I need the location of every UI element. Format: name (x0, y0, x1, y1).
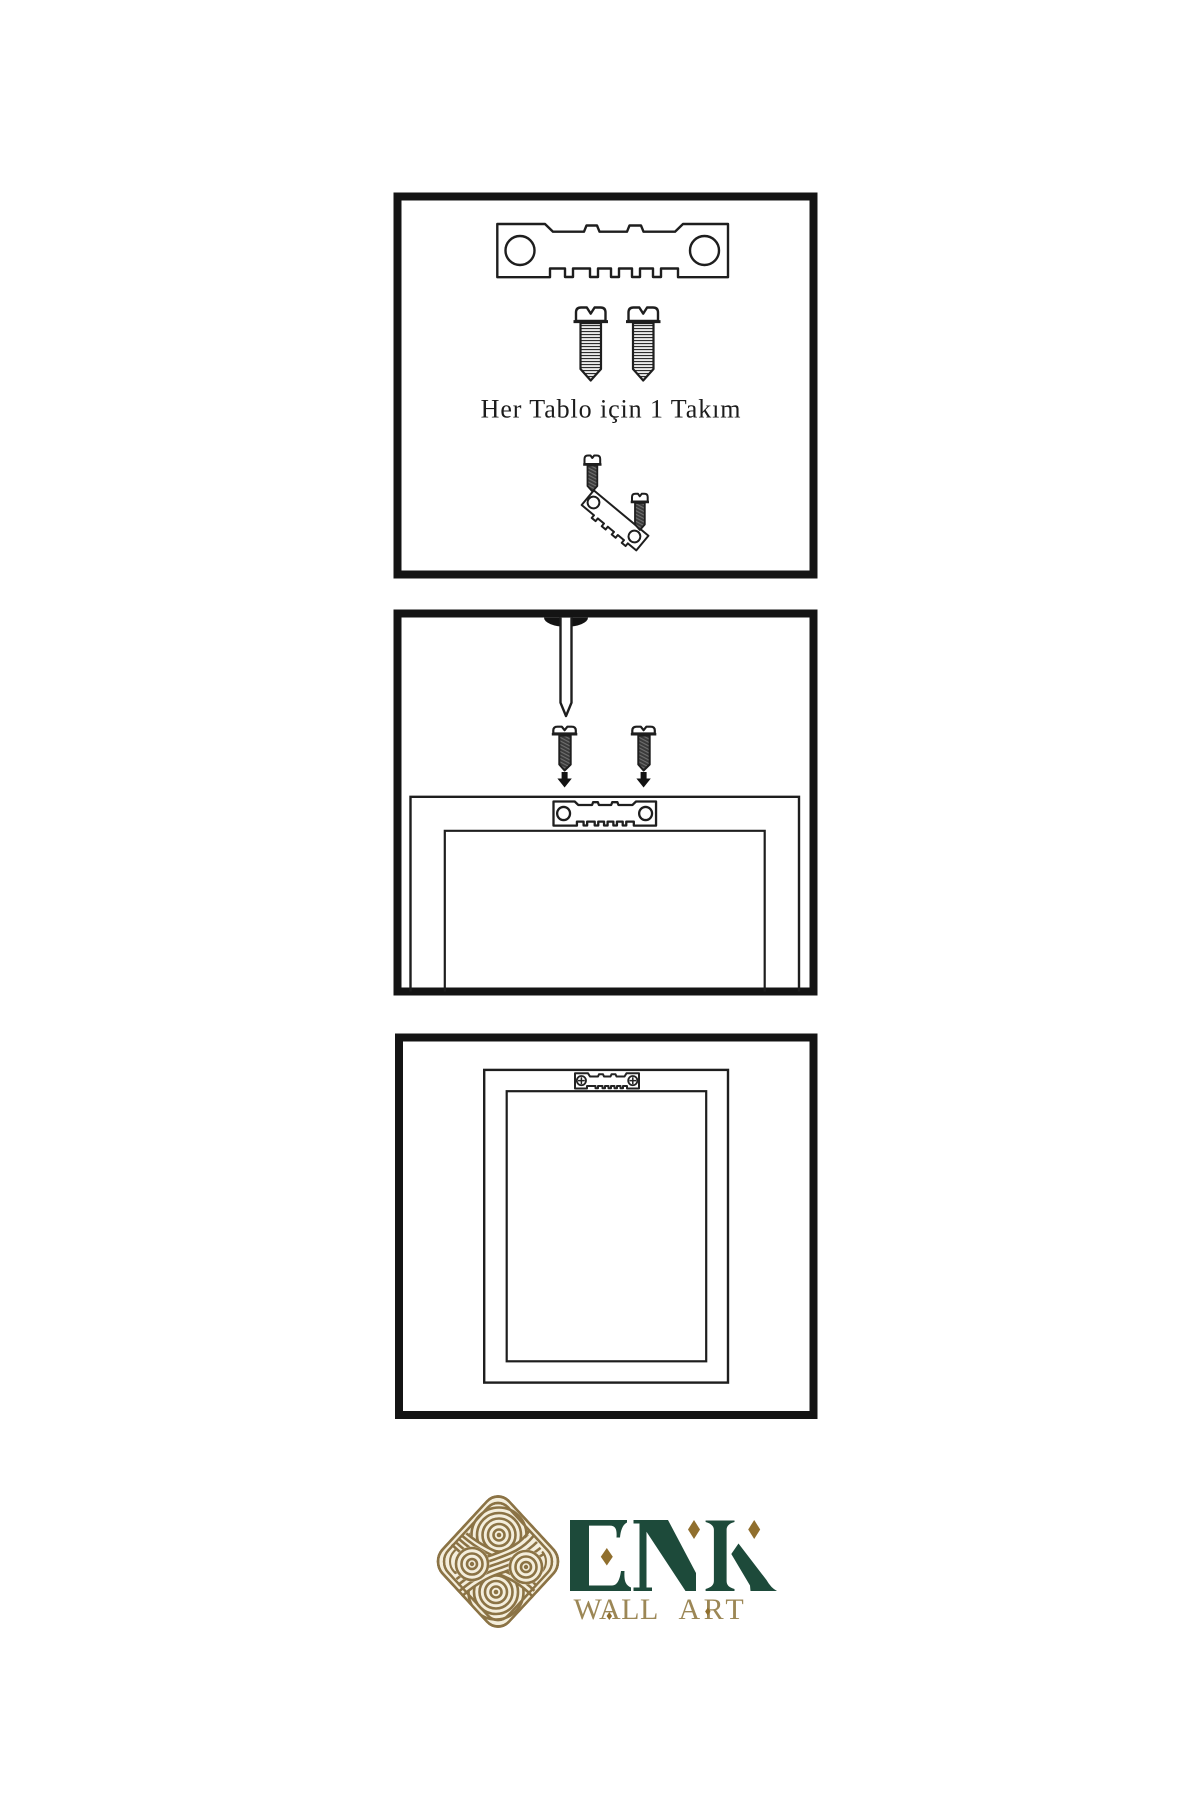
svg-text:Her Tablo için 1 Takım: Her Tablo için 1 Takım (481, 395, 742, 424)
svg-text:WALL: WALL (574, 1593, 659, 1626)
svg-text:ART: ART (679, 1593, 748, 1626)
